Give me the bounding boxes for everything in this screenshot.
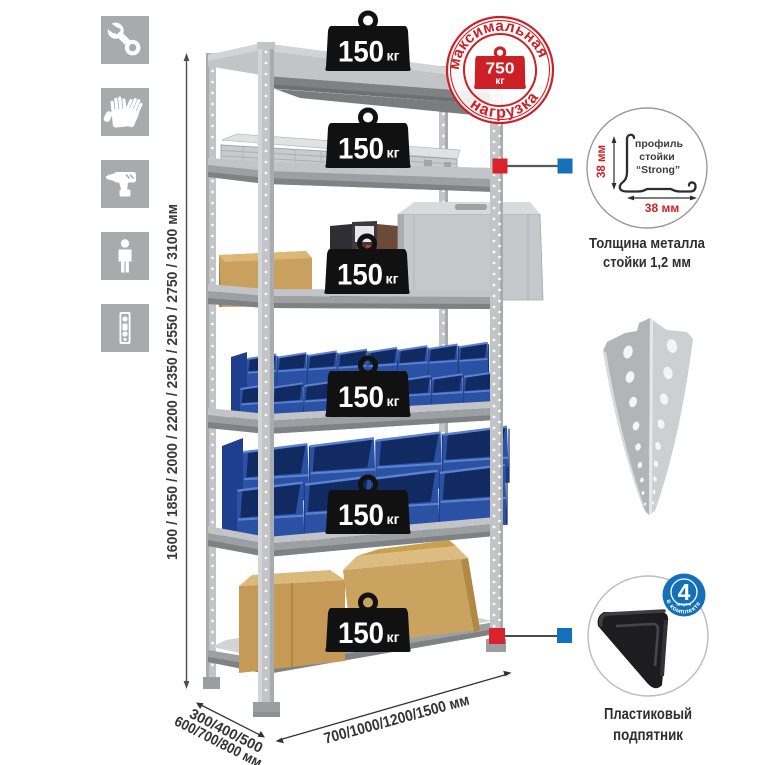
- svg-text:кг: кг: [387, 511, 400, 527]
- svg-text:стойки 1,2 мм: стойки 1,2 мм: [603, 254, 691, 271]
- svg-text:подпятник: подпятник: [613, 727, 683, 744]
- svg-text:кг: кг: [387, 47, 400, 63]
- svg-text:1600 / 1850 / 2000 / 2200 / 23: 1600 / 1850 / 2000 / 2200 / 2350 / 2550 …: [165, 204, 181, 560]
- svg-text:профиль: профиль: [635, 138, 683, 150]
- svg-text:кг: кг: [495, 76, 504, 87]
- svg-text:стойки: стойки: [639, 151, 674, 163]
- svg-text:150: 150: [338, 35, 384, 68]
- svg-text:Пластиковый: Пластиковый: [604, 706, 692, 723]
- svg-text:штуки: штуки: [676, 602, 691, 607]
- svg-text:кг: кг: [387, 144, 400, 160]
- svg-text:150: 150: [338, 132, 384, 165]
- svg-text:“Strong”: “Strong”: [636, 164, 680, 176]
- svg-text:750: 750: [486, 60, 515, 77]
- svg-text:кг: кг: [386, 270, 399, 286]
- svg-text:кг: кг: [387, 629, 400, 645]
- svg-text:150: 150: [338, 381, 384, 414]
- svg-text:150: 150: [338, 617, 384, 650]
- svg-text:Толщина металла: Толщина металла: [589, 235, 706, 252]
- svg-text:150: 150: [337, 258, 383, 291]
- svg-text:кг: кг: [387, 393, 400, 409]
- svg-text:150: 150: [338, 499, 384, 532]
- svg-text:38 мм: 38 мм: [596, 145, 608, 178]
- svg-text:38 мм: 38 мм: [645, 201, 680, 215]
